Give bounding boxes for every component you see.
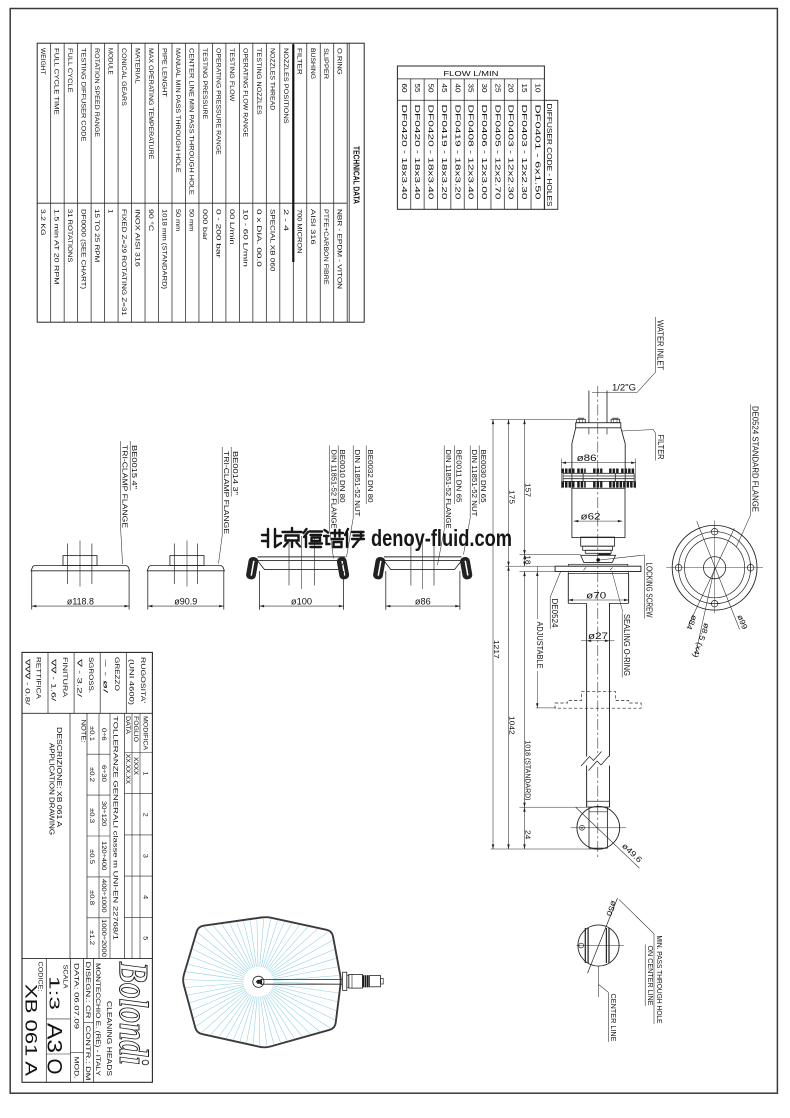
svg-text:NOZZLES POSITIONS: NOZZLES POSITIONS: [282, 48, 289, 124]
svg-text:DATA: 06.07.09: DATA: 06.07.09: [73, 963, 80, 1029]
svg-text:1:3: 1:3: [46, 976, 62, 1010]
svg-text:OPERATING PRESSURE RANGE: OPERATING PRESSURE RANGE: [214, 48, 221, 155]
svg-text:3: 3: [142, 854, 149, 859]
svg-text:TESTING NOZZLES: TESTING NOZZLES: [255, 48, 262, 115]
svg-text:50 mm: 50 mm: [187, 209, 194, 232]
svg-text:NOZZLES THREAD: NOZZLES THREAD: [268, 48, 275, 111]
svg-text:O.RING: O.RING: [336, 48, 343, 75]
svg-text:25: 25: [493, 84, 500, 93]
svg-text:00 L/min: 00 L/min: [228, 209, 235, 245]
svg-text:1018 (STANDARD): 1018 (STANDARD): [523, 741, 532, 801]
svg-text:BE0011 DN 65: BE0011 DN 65: [455, 450, 464, 503]
svg-text:XB 061 A: XB 061 A: [22, 984, 40, 1076]
svg-text:±0.1: ±0.1: [88, 726, 95, 742]
svg-text:DESCRIZIONE: XB 061 A: DESCRIZIONE: XB 061 A: [55, 727, 62, 827]
svg-text:000 bar: 000 bar: [201, 209, 208, 241]
svg-text:2: 2: [142, 813, 149, 818]
svg-text:XX.XX.XX: XX.XX.XX: [124, 754, 131, 784]
svg-text:FIXED Z=29 ROTATING Z=31: FIXED Z=29 ROTATING Z=31: [120, 209, 127, 316]
svg-text:90 °C: 90 °C: [147, 209, 155, 232]
svg-text:15: 15: [520, 84, 527, 93]
svg-text:DIFFUSER CODE - HOLES: DIFFUSER CODE - HOLES: [545, 104, 552, 207]
svg-text:DF0406 - 12x3.00: DF0406 - 12x3.00: [480, 105, 487, 200]
svg-text:45: 45: [440, 84, 447, 93]
svg-text:0 - 200 bar: 0 - 200 bar: [214, 209, 221, 259]
svg-text:DIN 11851-52 NUT: DIN 11851-52 NUT: [353, 450, 362, 517]
svg-text:40: 40: [453, 84, 460, 93]
svg-text:31 ROTATIONS: 31 ROTATIONS: [66, 209, 73, 263]
svg-text:157: 157: [523, 483, 532, 497]
svg-text:WATER INLET: WATER INLET: [656, 320, 665, 370]
svg-text:denoy-fluid.com: denoy-fluid.com: [371, 525, 512, 551]
svg-text:O: O: [43, 1059, 66, 1075]
svg-text:DF0000 (SEE CHART): DF0000 (SEE CHART): [80, 209, 87, 289]
svg-text:WEIGHT: WEIGHT: [39, 48, 46, 75]
svg-text:5: 5: [142, 936, 149, 941]
svg-text:BE0014 3": BE0014 3": [231, 451, 240, 495]
svg-text:1042: 1042: [507, 716, 516, 735]
svg-text:DF0419 - 18x3.20: DF0419 - 18x3.20: [453, 105, 460, 200]
svg-text:700 MICRON: 700 MICRON: [295, 209, 302, 254]
svg-text:ø86: ø86: [415, 596, 431, 606]
svg-text:TRI-CLAMP FLANGE: TRI-CLAMP FLANGE: [222, 451, 231, 534]
svg-text:SCALA: SCALA: [62, 965, 69, 990]
svg-text:~ - ø/: ~ - ø/: [102, 659, 109, 693]
svg-text:ø70: ø70: [586, 590, 606, 600]
svg-text:∇ - 3.2/: ∇ - 3.2/: [76, 657, 83, 697]
svg-text:1000÷2000: 1000÷2000: [100, 919, 107, 957]
svg-text:FOGLIO: FOGLIO: [132, 716, 139, 742]
svg-text:CENTER LINE: CENTER LINE: [609, 994, 618, 1042]
svg-text:PTFE+CARBON FIBRE: PTFE+CARBON FIBRE: [322, 209, 329, 285]
svg-text:ø27: ø27: [588, 631, 608, 641]
svg-text:DISEGN.: CR: DISEGN.: CR: [84, 962, 91, 1019]
svg-text:15 TO 25 RPM: 15 TO 25 RPM: [93, 209, 100, 262]
svg-text:FINITURA: FINITURA: [61, 657, 68, 698]
svg-text:APPLICATION DRAWING: APPLICATION DRAWING: [48, 743, 55, 835]
svg-text:ø118.8: ø118.8: [67, 596, 94, 606]
svg-text:(UNI 4600): (UNI 4600): [128, 659, 135, 705]
svg-text:175: 175: [507, 490, 516, 504]
svg-text:ROTATION SPEED RANGE: ROTATION SPEED RANGE: [93, 48, 100, 138]
svg-text:120÷400: 120÷400: [100, 841, 107, 871]
svg-text:±1.2: ±1.2: [88, 930, 95, 946]
svg-text:CENTER LINE MIN PASS THROUGH H: CENTER LINE MIN PASS THROUGH HOLE: [187, 48, 194, 196]
svg-text:FULL CYCLE: FULL CYCLE: [66, 48, 73, 93]
svg-text:MANUAL MIN PASS THROUGH HOLE: MANUAL MIN PASS THROUGH HOLE: [174, 48, 181, 173]
svg-text:MODULE: MODULE: [107, 48, 114, 75]
svg-text:SEALING O-RING: SEALING O-RING: [622, 614, 631, 676]
svg-text:TESTING FLOW: TESTING FLOW: [228, 48, 235, 102]
svg-text:ø90.9: ø90.9: [174, 596, 197, 606]
svg-text:FLOW L/MIN: FLOW L/MIN: [443, 69, 498, 78]
svg-text:1: 1: [142, 772, 149, 777]
svg-text:18: 18: [523, 555, 532, 564]
svg-text:SLIPPER: SLIPPER: [322, 48, 329, 79]
svg-text:TRI-CLAMP FLANGE: TRI-CLAMP FLANGE: [121, 445, 130, 528]
svg-text:60: 60: [400, 84, 407, 93]
svg-text:MATERIAL: MATERIAL: [134, 48, 141, 84]
svg-text:400÷1000: 400÷1000: [100, 879, 107, 913]
svg-text:DF0401 - 6x1.50: DF0401 - 6x1.50: [533, 105, 540, 200]
svg-text:DF0408 - 12x3.40: DF0408 - 12x3.40: [467, 105, 474, 200]
svg-text:BE0030 DN 65: BE0030 DN 65: [479, 450, 488, 503]
svg-text:RUGOSITA': RUGOSITA': [139, 657, 146, 703]
svg-text:1.5 min AT 20 RPM: 1.5 min AT 20 RPM: [53, 209, 60, 285]
svg-text:DF0419 - 18x3.20: DF0419 - 18x3.20: [440, 105, 447, 200]
svg-text:INOX AISI 316: INOX AISI 316: [134, 209, 141, 267]
svg-text:1217: 1217: [492, 640, 501, 659]
svg-text:1: 1: [107, 209, 114, 214]
svg-text:1/2"G: 1/2"G: [612, 382, 636, 392]
svg-text:FILTER: FILTER: [295, 48, 302, 75]
svg-text:A3: A3: [43, 1023, 66, 1053]
svg-text:∇∇∇ - 0.8/: ∇∇∇ - 0.8/: [23, 657, 30, 705]
svg-text:DIN 11851-52 FLANGE: DIN 11851-52 FLANGE: [444, 450, 453, 529]
svg-text:AISI 316: AISI 316: [309, 209, 316, 245]
svg-text:DF0405 - 12x2.70: DF0405 - 12x2.70: [493, 105, 500, 200]
svg-text:6÷30: 6÷30: [100, 765, 107, 782]
svg-text:PIPE LENGHT: PIPE LENGHT: [161, 48, 168, 97]
svg-text:30: 30: [480, 84, 487, 93]
svg-text:NOTE:: NOTE:: [80, 720, 87, 743]
svg-text:ON CENTER LINE: ON CENTER LINE: [646, 946, 655, 1006]
svg-text:NBR - EPDM - VITON: NBR - EPDM - VITON: [336, 209, 343, 289]
svg-text:24: 24: [523, 830, 532, 839]
svg-text:50: 50: [427, 84, 434, 93]
svg-text:50 mm: 50 mm: [174, 209, 181, 232]
svg-text:10 - 60 L/min: 10 - 60 L/min: [241, 209, 248, 267]
svg-text:SGROSS.: SGROSS.: [87, 657, 94, 693]
svg-text:4: 4: [142, 895, 149, 900]
svg-text:55: 55: [413, 84, 420, 93]
svg-text:DF0420 - 18x3.40: DF0420 - 18x3.40: [427, 105, 434, 200]
svg-text:MONTECCHIO E. (RE) - ITALY: MONTECCHIO E. (RE) - ITALY: [94, 963, 101, 1077]
svg-text:MAX OPERATING TEMPERATURE: MAX OPERATING TEMPERATURE: [147, 48, 154, 160]
svg-text:0 x DIA. 00.0: 0 x DIA. 00.0: [255, 209, 262, 267]
svg-text:ø86: ø86: [577, 453, 597, 463]
svg-text:DE0524: DE0524: [550, 599, 559, 629]
svg-text:1018 mm (STANDARD): 1018 mm (STANDARD): [161, 209, 168, 289]
svg-text:FULL CYCLE TIME: FULL CYCLE TIME: [53, 48, 60, 115]
svg-text:DE0524 STANDARD FLANGE: DE0524 STANDARD FLANGE: [750, 406, 759, 512]
svg-text:2 - 4: 2 - 4: [282, 209, 289, 232]
svg-text:CLEANING HEADS: CLEANING HEADS: [105, 1001, 112, 1076]
svg-text:3.2 KG: 3.2 KG: [39, 209, 46, 236]
svg-text:RETTIFICA: RETTIFICA: [35, 657, 42, 700]
svg-text:MODIFICA: MODIFICA: [142, 716, 149, 751]
svg-text:10: 10: [533, 84, 540, 93]
svg-text:±0.5: ±0.5: [88, 849, 95, 865]
svg-text:DF0420 - 18x3.40: DF0420 - 18x3.40: [413, 105, 420, 200]
svg-text:XXXX: XXXX: [132, 757, 139, 775]
svg-text:35: 35: [467, 84, 474, 93]
svg-text:MIN. PASS THROUGH HOLE: MIN. PASS THROUGH HOLE: [655, 936, 664, 1024]
svg-text:ADJUSTABLE: ADJUSTABLE: [535, 622, 544, 669]
svg-text:TESTING PRESSURE: TESTING PRESSURE: [201, 48, 208, 120]
svg-text:DF0403 - 12x2.30: DF0403 - 12x2.30: [507, 105, 514, 200]
svg-text:BUSHING: BUSHING: [309, 48, 316, 79]
svg-text:DIN 11851-52 FLANGE: DIN 11851-52 FLANGE: [330, 450, 339, 529]
svg-text:ø62: ø62: [581, 511, 601, 521]
svg-text:±0.2: ±0.2: [88, 767, 95, 783]
svg-text:BE0015 4": BE0015 4": [130, 445, 139, 489]
svg-text:CONICAL GEARS: CONICAL GEARS: [120, 48, 127, 106]
svg-text:20: 20: [507, 84, 514, 93]
svg-text:±0.3: ±0.3: [88, 808, 95, 824]
svg-text:CONTR.: DM: CONTR.: DM: [84, 1026, 91, 1081]
svg-text:±0.8: ±0.8: [88, 890, 95, 906]
svg-text:TESTING DIFFUSER CODE: TESTING DIFFUSER CODE: [80, 48, 87, 142]
svg-text:DIN 11851-52 NUT: DIN 11851-52 NUT: [470, 450, 479, 517]
svg-text:OPERATING FLOW RANGE: OPERATING FLOW RANGE: [241, 48, 248, 138]
svg-text:MOD.: MOD.: [73, 1057, 80, 1079]
svg-text:Bolondi: Bolondi: [111, 961, 157, 1065]
svg-text:30÷120: 30÷120: [100, 801, 107, 827]
svg-text:LOCKING SCREW: LOCKING SCREW: [644, 563, 653, 618]
svg-text:BE0032 DN 80: BE0032 DN 80: [366, 450, 375, 503]
svg-text:DATA: DATA: [124, 716, 131, 735]
svg-text:SPECIAL XB 060: SPECIAL XB 060: [268, 209, 275, 272]
svg-text:∇∇ - 1.6/: ∇∇ - 1.6/: [49, 657, 56, 701]
svg-text:DF0403 - 12x2.30: DF0403 - 12x2.30: [520, 105, 527, 200]
svg-text:TOLLERANZE GENERALI classe m U: TOLLERANZE GENERALI classe m UNI-EN 2276…: [112, 716, 119, 941]
svg-text:ø100: ø100: [291, 596, 312, 606]
svg-text:GREZZO: GREZZO: [113, 657, 120, 691]
svg-text:DF0420 - 18x3.40: DF0420 - 18x3.40: [400, 105, 407, 200]
svg-text:TECHNICAL DATA: TECHNICAL DATA: [351, 146, 360, 204]
svg-text:0÷6: 0÷6: [100, 728, 107, 741]
svg-text:FILTER: FILTER: [656, 435, 665, 460]
